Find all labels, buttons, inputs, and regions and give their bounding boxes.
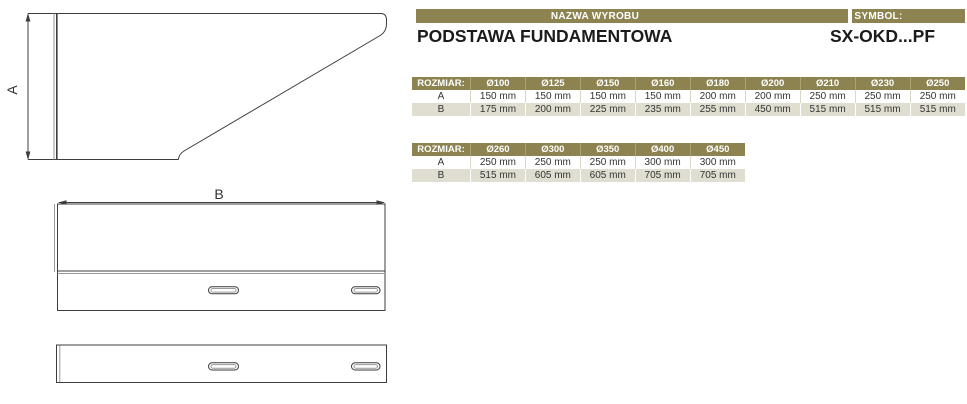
symbol-header-label: SYMBOL: bbox=[854, 11, 902, 22]
dimension-value-cell: 250 mm bbox=[580, 156, 635, 169]
dimension-row-B: B515 mm605 mm605 mm705 mm705 mm bbox=[412, 169, 745, 182]
front-view-slot-hole-left bbox=[209, 287, 239, 294]
size-table-header-row: ROZMIAR:Ø260Ø300Ø350Ø400Ø450 bbox=[412, 143, 745, 156]
diameter-header-cell: Ø260 bbox=[471, 143, 526, 156]
diameter-header-cell: Ø450 bbox=[690, 143, 745, 156]
dimension-value-cell: 150 mm bbox=[635, 90, 690, 103]
rozmiar-header-cell: ROZMIAR: bbox=[412, 143, 471, 156]
diameter-header-cell: Ø180 bbox=[690, 77, 745, 90]
row-label-cell: A bbox=[412, 156, 471, 169]
dimension-value-cell: 300 mm bbox=[690, 156, 745, 169]
dimension-value-cell: 200 mm bbox=[525, 103, 580, 116]
row-label-cell: B bbox=[412, 103, 471, 116]
dimension-value-cell: 175 mm bbox=[471, 103, 526, 116]
diameter-header-cell: Ø400 bbox=[635, 143, 690, 156]
dimension-value-cell: 605 mm bbox=[525, 169, 580, 182]
size-table-large-diameters: ROZMIAR:Ø260Ø300Ø350Ø400Ø450A250 mm250 m… bbox=[412, 143, 745, 182]
dimension-value-cell: 225 mm bbox=[580, 103, 635, 116]
dimension-row-B: B175 mm200 mm225 mm235 mm255 mm450 mm515… bbox=[412, 103, 965, 116]
diameter-header-cell: Ø210 bbox=[800, 77, 855, 90]
dimension-value-cell: 150 mm bbox=[525, 90, 580, 103]
dimension-value-cell: 605 mm bbox=[580, 169, 635, 182]
size-table-small-diameters: ROZMIAR:Ø100Ø125Ø150Ø160Ø180Ø200Ø210Ø230… bbox=[412, 77, 965, 116]
dimension-value-cell: 300 mm bbox=[635, 156, 690, 169]
dimension-value-cell: 250 mm bbox=[855, 90, 910, 103]
front-view-drawing: B bbox=[55, 186, 386, 311]
dimension-value-cell: 250 mm bbox=[800, 90, 855, 103]
front-view-outline bbox=[58, 204, 386, 311]
symbol-header-bar: SYMBOL: bbox=[852, 9, 965, 23]
row-label-cell: A bbox=[412, 90, 471, 103]
bottom-view-outline bbox=[57, 345, 387, 383]
side-view-drawing: A bbox=[4, 13, 387, 160]
product-name-header-label: NAZWA WYROBU bbox=[551, 11, 639, 22]
dimension-row-A: A150 mm150 mm150 mm150 mm200 mm200 mm250… bbox=[412, 90, 965, 103]
dimension-a-label: A bbox=[4, 85, 20, 95]
diameter-header-cell: Ø350 bbox=[580, 143, 635, 156]
dimension-value-cell: 255 mm bbox=[690, 103, 745, 116]
dimension-a-line: A bbox=[4, 13, 30, 160]
diameter-header-cell: Ø150 bbox=[580, 77, 635, 90]
dimension-row-A: A250 mm250 mm250 mm300 mm300 mm bbox=[412, 156, 745, 169]
dimension-value-cell: 450 mm bbox=[745, 103, 800, 116]
row-label-cell: B bbox=[412, 169, 471, 182]
dimension-value-cell: 515 mm bbox=[471, 169, 526, 182]
dimension-value-cell: 515 mm bbox=[800, 103, 855, 116]
dimension-value-cell: 250 mm bbox=[471, 156, 526, 169]
diameter-header-cell: Ø300 bbox=[525, 143, 580, 156]
dimension-value-cell: 150 mm bbox=[580, 90, 635, 103]
dimension-value-cell: 235 mm bbox=[635, 103, 690, 116]
dimension-value-cell: 200 mm bbox=[745, 90, 800, 103]
datasheet-page: A B bbox=[0, 0, 967, 404]
dimension-value-cell: 705 mm bbox=[635, 169, 690, 182]
bottom-view-slot-hole-left bbox=[209, 363, 239, 370]
technical-drawing: A B bbox=[0, 0, 410, 404]
side-view-outline bbox=[28, 14, 387, 160]
dimension-value-cell: 250 mm bbox=[910, 90, 965, 103]
dimension-value-cell: 200 mm bbox=[690, 90, 745, 103]
product-name: PODSTAWA FUNDAMENTOWA bbox=[417, 26, 672, 47]
diameter-header-cell: Ø100 bbox=[471, 77, 526, 90]
size-table-header-row: ROZMIAR:Ø100Ø125Ø150Ø160Ø180Ø200Ø210Ø230… bbox=[412, 77, 965, 90]
product-symbol: SX-OKD...PF bbox=[830, 26, 935, 47]
dimension-value-cell: 250 mm bbox=[525, 156, 580, 169]
bottom-view-slot-hole-right bbox=[352, 363, 381, 370]
rozmiar-header-cell: ROZMIAR: bbox=[412, 77, 471, 90]
diameter-header-cell: Ø160 bbox=[635, 77, 690, 90]
product-name-header-bar: NAZWA WYROBU bbox=[416, 9, 848, 23]
dimension-value-cell: 515 mm bbox=[855, 103, 910, 116]
front-view-slot-hole-right bbox=[352, 287, 381, 294]
diameter-header-cell: Ø200 bbox=[745, 77, 800, 90]
dimension-b-line: B bbox=[58, 186, 385, 205]
dimension-value-cell: 515 mm bbox=[910, 103, 965, 116]
bottom-view-drawing bbox=[57, 345, 387, 383]
diameter-header-cell: Ø125 bbox=[525, 77, 580, 90]
dimension-value-cell: 150 mm bbox=[471, 90, 526, 103]
diameter-header-cell: Ø250 bbox=[910, 77, 965, 90]
dimension-value-cell: 705 mm bbox=[690, 169, 745, 182]
dimension-b-label: B bbox=[214, 186, 223, 202]
diameter-header-cell: Ø230 bbox=[855, 77, 910, 90]
